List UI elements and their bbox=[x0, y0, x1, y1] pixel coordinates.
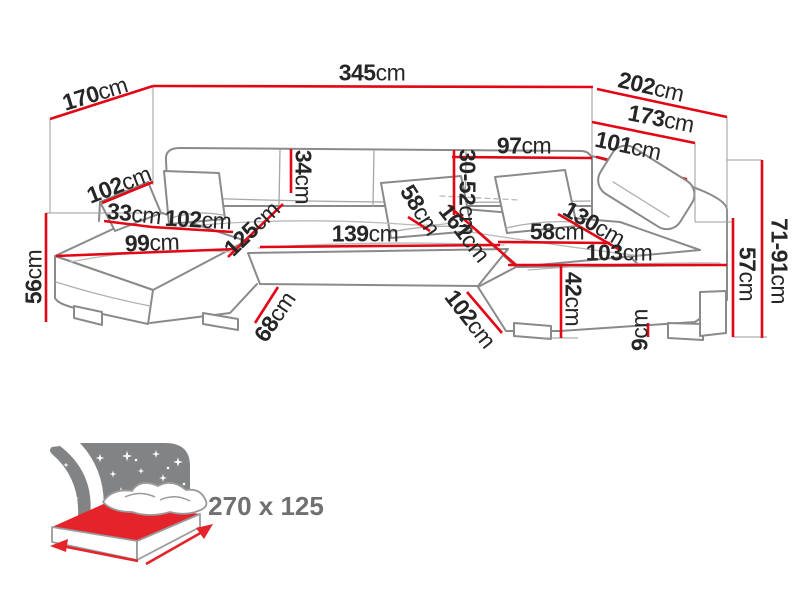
dim-value: 34 bbox=[291, 150, 317, 175]
dim-label-56: 56cm bbox=[23, 250, 46, 304]
dim-value: 58 bbox=[530, 219, 555, 245]
dim-value: 30-52 bbox=[455, 149, 481, 205]
dim-unit: cm bbox=[627, 309, 653, 339]
dim-value: 42 bbox=[561, 272, 587, 297]
dim-value: 139 bbox=[332, 221, 369, 247]
dim-value: 71-91 bbox=[767, 218, 793, 274]
dim-label-139: 139cm bbox=[332, 223, 399, 246]
sleeping-area-label: 270 x 125 bbox=[208, 493, 324, 519]
dim-value: 56 bbox=[21, 280, 47, 305]
dim-value: 345 bbox=[339, 60, 376, 86]
dim-label-99: 99cm bbox=[124, 231, 179, 256]
dim-unit: cm bbox=[561, 296, 587, 326]
sofa-foot bbox=[668, 323, 703, 340]
dim-value: 103 bbox=[586, 240, 623, 266]
dim-unit: cm bbox=[623, 240, 653, 266]
dim-label-33: 33cm bbox=[106, 200, 162, 229]
dim-unit: cm bbox=[521, 133, 551, 159]
dim-value: 99 bbox=[124, 230, 149, 257]
dim-label-97: 97cm bbox=[497, 135, 551, 158]
dim-value: 97 bbox=[497, 133, 522, 159]
dim-unit: cm bbox=[735, 271, 761, 301]
dim-label-71-91: 71-91cm bbox=[768, 218, 791, 304]
dim-label-57: 57cm bbox=[736, 247, 759, 301]
sofa-foot bbox=[203, 313, 238, 330]
dim-unit: cm bbox=[662, 106, 696, 137]
dim-unit: cm bbox=[369, 221, 399, 247]
dim-unit: cm bbox=[21, 250, 47, 280]
dimension-diagram: 170cm 345cm 202cm 173cm 101cm 97cm 30-52… bbox=[0, 0, 800, 600]
dim-value: 33 bbox=[106, 198, 133, 226]
dim-label-34: 34cm bbox=[292, 150, 315, 204]
dim-unit: cm bbox=[376, 60, 406, 86]
sofa-right-chaise-front bbox=[478, 265, 727, 331]
dim-unit: cm bbox=[291, 174, 317, 204]
dim-unit: cm bbox=[201, 207, 232, 235]
dim-label-9: 9cm bbox=[629, 309, 652, 351]
dim-label-42: 42cm bbox=[562, 272, 585, 326]
dim-value: 9 bbox=[627, 339, 653, 351]
sofa-foot bbox=[514, 323, 551, 339]
dim-value: 57 bbox=[735, 247, 761, 272]
dim-label-103: 103cm bbox=[586, 242, 653, 265]
dim-unit: cm bbox=[767, 274, 793, 304]
dim-label-345: 345cm bbox=[339, 62, 406, 85]
dim-line-345 bbox=[153, 86, 593, 87]
sofa-foot bbox=[700, 291, 726, 336]
sofa-bed-night-icon bbox=[50, 443, 213, 564]
dim-unit: cm bbox=[130, 200, 162, 229]
dim-unit: cm bbox=[149, 229, 180, 256]
night-sky-swoosh bbox=[50, 446, 91, 517]
